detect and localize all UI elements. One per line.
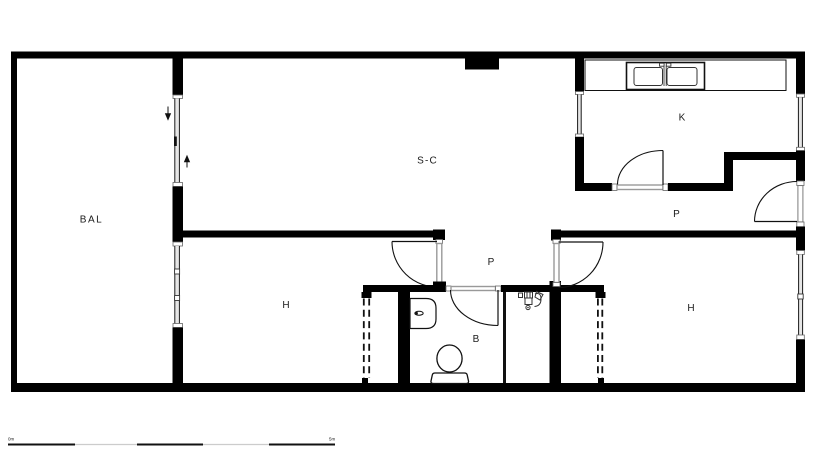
- svg-text:S-C: S-C: [417, 156, 438, 167]
- svg-text:H: H: [282, 300, 290, 311]
- svg-text:B: B: [473, 334, 481, 345]
- svg-text:BAL: BAL: [80, 215, 103, 226]
- svg-text:P: P: [488, 257, 496, 268]
- svg-text:5m: 5m: [329, 437, 336, 442]
- svg-text:0m: 0m: [8, 437, 15, 442]
- svg-text:H: H: [687, 303, 695, 314]
- svg-text:P: P: [673, 209, 681, 220]
- svg-text:K: K: [679, 113, 687, 124]
